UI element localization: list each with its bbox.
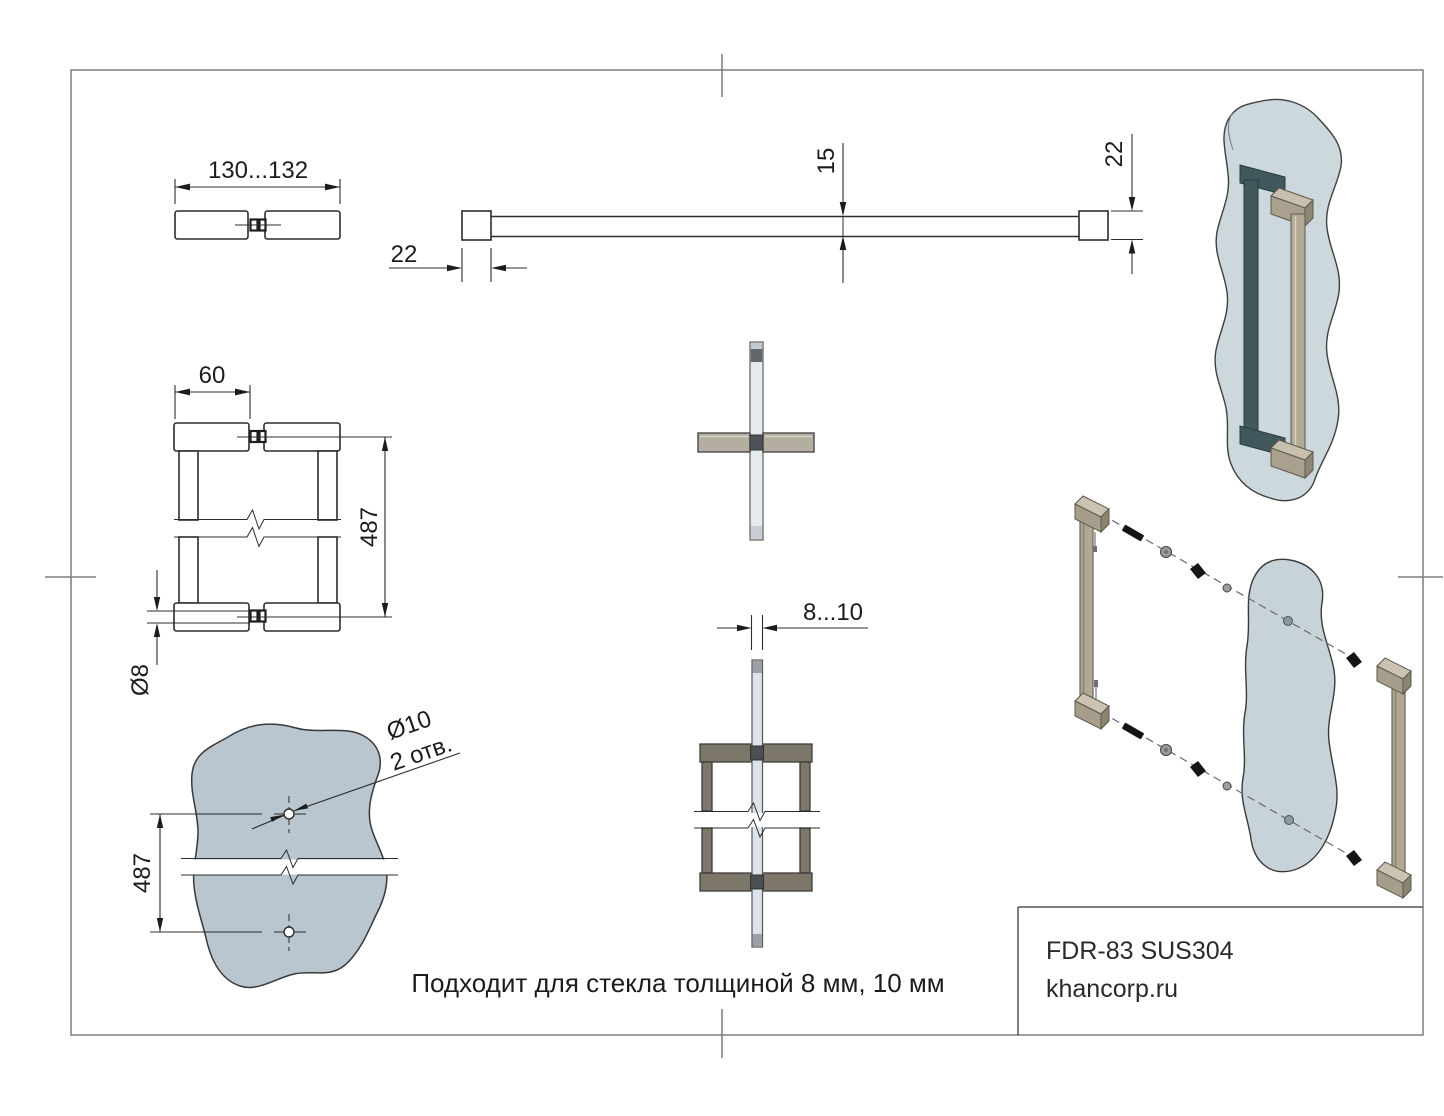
dim-cap-width-text: 60	[199, 362, 226, 389]
threaded-stud	[1122, 524, 1145, 541]
washer	[1223, 584, 1231, 592]
view-handle-side: 22 15 22	[389, 134, 1143, 283]
dim-glass-thickness-text: 8...10	[803, 599, 863, 626]
dim-cap-section-text: 22	[391, 241, 418, 268]
gasket	[1190, 761, 1206, 777]
spigot-through-glass	[751, 875, 764, 889]
dim-bar-height: 15	[813, 143, 846, 283]
dim-centers-text: 487	[356, 507, 383, 547]
website-text: khancorp.ru	[1046, 975, 1178, 1003]
dim-bar-height-text: 15	[813, 148, 840, 175]
spigot-through-glass	[751, 746, 764, 760]
dim-spigot-dia-text: Ø8	[127, 664, 154, 696]
dim-glass-centers: 487	[129, 814, 163, 932]
threaded-stud	[1122, 722, 1145, 739]
glass-hole-bottom	[1285, 816, 1294, 825]
render-exploded-assembly	[1075, 496, 1411, 898]
technical-drawing-sheet: FDR-83 SUS304 khancorp.ru 130...132	[0, 0, 1444, 1116]
gasket	[1346, 850, 1362, 866]
dim-cap-section: 22	[389, 241, 527, 282]
render-handle-on-glass	[1215, 100, 1341, 501]
view-glass-drilling: 487 Ø10 2 отв.	[129, 705, 460, 987]
dim-cap-section-side-text: 22	[1101, 141, 1128, 168]
washer	[1223, 782, 1231, 790]
dim-overall-length: 130...132	[175, 157, 340, 204]
dim-overall-length-text: 130...132	[208, 157, 308, 184]
exploded-handle-right	[1377, 658, 1411, 898]
glass-hole-top	[1284, 617, 1293, 626]
title-block: FDR-83 SUS304 khancorp.ru	[1018, 907, 1423, 1035]
view-handle-front: 60 487	[127, 362, 392, 696]
dim-glass-centers-text: 487	[129, 853, 156, 893]
dim-centers: 487	[356, 437, 388, 617]
dim-glass-thickness: 8...10	[717, 599, 868, 650]
dim-cap-section-side: 22	[1101, 134, 1143, 274]
gasket	[1346, 652, 1362, 668]
dim-cap-width: 60	[175, 362, 250, 419]
view-handle-side-glass: 8...10	[694, 599, 868, 947]
glass-compatibility-note: Подходит для стекла толщиной 8 мм, 10 мм	[411, 968, 944, 998]
exploded-handle-left	[1075, 496, 1109, 729]
spigot-through-glass	[750, 435, 763, 450]
gasket	[1190, 563, 1206, 579]
view-handle-section-top: 130...132	[175, 157, 340, 239]
model-number: FDR-83 SUS304	[1046, 937, 1234, 965]
view-handle-plan-glass	[698, 342, 814, 540]
